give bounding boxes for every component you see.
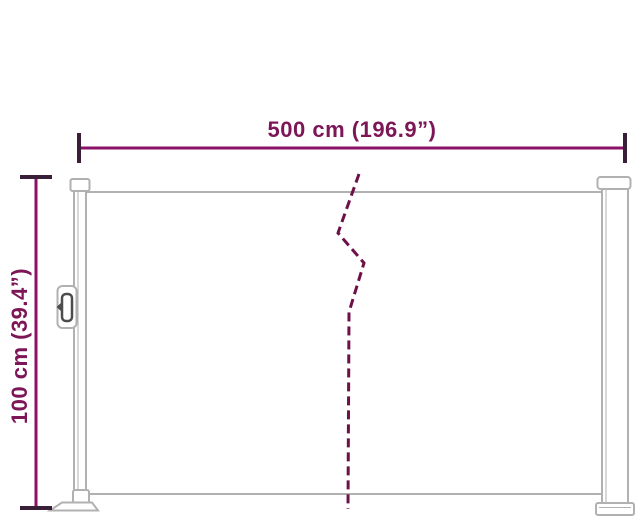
right-base bbox=[596, 503, 634, 515]
break-line bbox=[338, 174, 364, 509]
left-pole-cap bbox=[71, 179, 90, 191]
bottom-rail-end bbox=[73, 490, 89, 503]
right-pole-cap bbox=[598, 177, 631, 189]
dimension-diagram: 500 cm (196.9”) 100 cm (39.4”) bbox=[0, 0, 640, 528]
height-dimension-label: 100 cm (39.4”) bbox=[7, 246, 33, 446]
awning-drawing bbox=[0, 0, 640, 528]
width-dimension-label: 500 cm (196.9”) bbox=[79, 117, 625, 143]
left-pole bbox=[74, 191, 86, 502]
awning-outline bbox=[50, 177, 634, 515]
left-base-plate bbox=[50, 503, 98, 511]
